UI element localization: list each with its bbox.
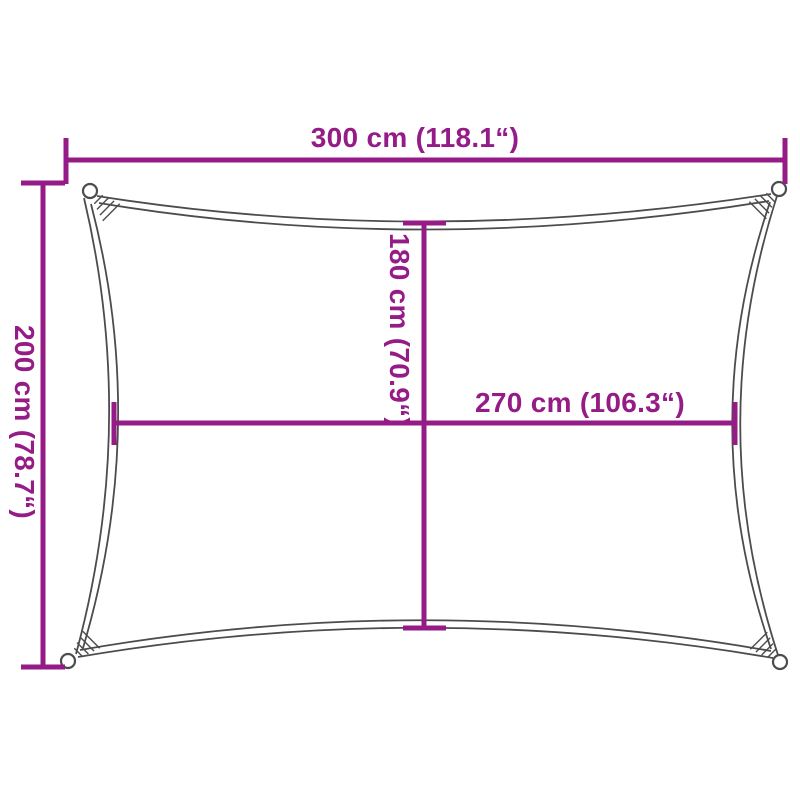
sail-right-edge [740,196,778,655]
grommet-bottom-right [773,655,787,669]
dimension-label-inner-height: 180 cm (70.9“) [385,233,413,427]
dimension-label-left-height: 200 cm (78.7“) [10,325,38,519]
sail-outline [76,194,778,658]
grommet-top-right [772,182,786,196]
dimension-label-top-width: 300 cm (118.1“) [311,124,519,152]
sail-bottom-edge [78,628,773,658]
diagram-canvas: 300 cm (118.1“) 200 cm (78.7“) 180 cm (7… [0,0,800,800]
grommet-top-left [83,184,97,198]
sail-right-edge-inner [732,202,771,649]
dimension-label-inner-width: 270 cm (106.3“) [475,389,685,417]
